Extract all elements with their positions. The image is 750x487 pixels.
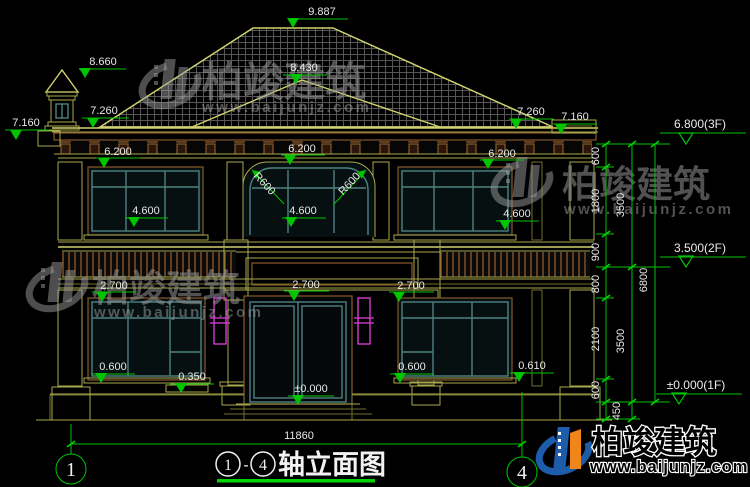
dim-roof-ridge: 9.887	[287, 6, 348, 28]
level-2f: 3.500(2F)	[596, 241, 746, 267]
cad-elevation-drawing: 柏竣建筑 www.baijunjz.com 柏竣建筑 www.baijunjz.…	[0, 0, 750, 487]
watermark-left: 柏竣建筑 www.baijunjz.com	[23, 260, 263, 321]
watermark-top: 柏竣建筑 www.baijunjz.com	[136, 57, 371, 116]
title-text: 轴立面图	[278, 449, 386, 480]
sconce-right	[354, 298, 374, 344]
dim-chimney-top: 8.660	[79, 56, 126, 78]
brand-logo: 柏竣建筑 www.baijunjz.com	[533, 425, 748, 479]
vdim-600b: 600	[590, 381, 602, 399]
svg-text:±0.000: ±0.000	[294, 383, 328, 395]
svg-text:0.600: 0.600	[99, 361, 127, 373]
title-axis-from: 1	[224, 457, 232, 474]
svg-text:7.260: 7.260	[517, 106, 545, 118]
svg-text:8.430: 8.430	[290, 62, 318, 74]
title-separator: -	[243, 457, 248, 474]
svg-text:6.200: 6.200	[288, 143, 316, 155]
svg-text:4.600: 4.600	[289, 205, 317, 217]
chimney	[45, 70, 79, 130]
svg-text:±0.000(1F): ±0.000(1F)	[667, 378, 726, 392]
title-underline	[217, 479, 375, 483]
drawing-title: 1 - 4 轴立面图	[216, 449, 386, 483]
svg-text:2.700: 2.700	[292, 279, 320, 291]
vdim-450: 450	[611, 402, 623, 420]
watermark-url: www.baijunjz.com	[93, 304, 263, 321]
svg-text:7.160: 7.160	[12, 117, 40, 129]
svg-text:6.800(3F): 6.800(3F)	[674, 117, 726, 131]
title-axis-to: 4	[259, 457, 267, 474]
svg-text:0.350: 0.350	[178, 371, 206, 383]
svg-text:7.160: 7.160	[561, 111, 589, 123]
brand-name: 柏竣建筑	[592, 425, 716, 460]
window-ledge	[166, 385, 208, 392]
svg-text:2.700: 2.700	[397, 280, 425, 292]
pilaster-2f-a	[227, 162, 243, 240]
svg-text:2.700: 2.700	[100, 280, 128, 292]
dim-cornice-right: 7.160	[553, 111, 597, 134]
svg-text:6.200: 6.200	[104, 146, 132, 158]
svg-text:0.610: 0.610	[518, 360, 546, 372]
vdim-3500b: 3500	[615, 329, 627, 353]
svg-text:9.887: 9.887	[308, 6, 336, 18]
corner-pilaster-left-2f	[58, 162, 82, 240]
vdim-6800: 6800	[638, 268, 650, 292]
svg-text:6.200: 6.200	[488, 148, 516, 160]
svg-text:8.660: 8.660	[89, 56, 117, 68]
axis-number-4: 4	[517, 462, 527, 484]
svg-text:0.600: 0.600	[398, 361, 426, 373]
dim-cornice-left: 7.160	[5, 117, 49, 140]
vdim-2100: 2100	[590, 327, 602, 351]
watermark-url: www.baijunjz.com	[201, 99, 371, 116]
svg-text:7.260: 7.260	[90, 105, 118, 117]
level-1f: ±0.000(1F)	[596, 378, 742, 404]
window-2f-left	[84, 167, 208, 240]
vdim-3500a: 3500	[615, 193, 627, 217]
brand-url: www.baijunjz.com	[589, 458, 748, 476]
svg-text:4.600: 4.600	[132, 205, 160, 217]
vdim-900: 900	[590, 243, 602, 261]
level-3f: 6.800(3F)	[596, 117, 746, 144]
watermark-brand: 柏竣建筑	[562, 163, 710, 205]
vdim-800: 800	[590, 275, 602, 293]
brand-logo-icon	[533, 427, 594, 479]
pier-base-left	[52, 387, 90, 420]
total-width: 11860	[284, 430, 314, 442]
svg-text:3.500(2F): 3.500(2F)	[674, 241, 726, 255]
railing-right	[440, 252, 590, 277]
svg-text:4.600: 4.600	[503, 208, 531, 220]
watermark-url: www.baijunjz.com	[563, 201, 733, 218]
vdim-600a: 600	[590, 147, 602, 165]
axis-number-1: 1	[66, 459, 76, 481]
vdim-1800: 1800	[590, 189, 602, 213]
